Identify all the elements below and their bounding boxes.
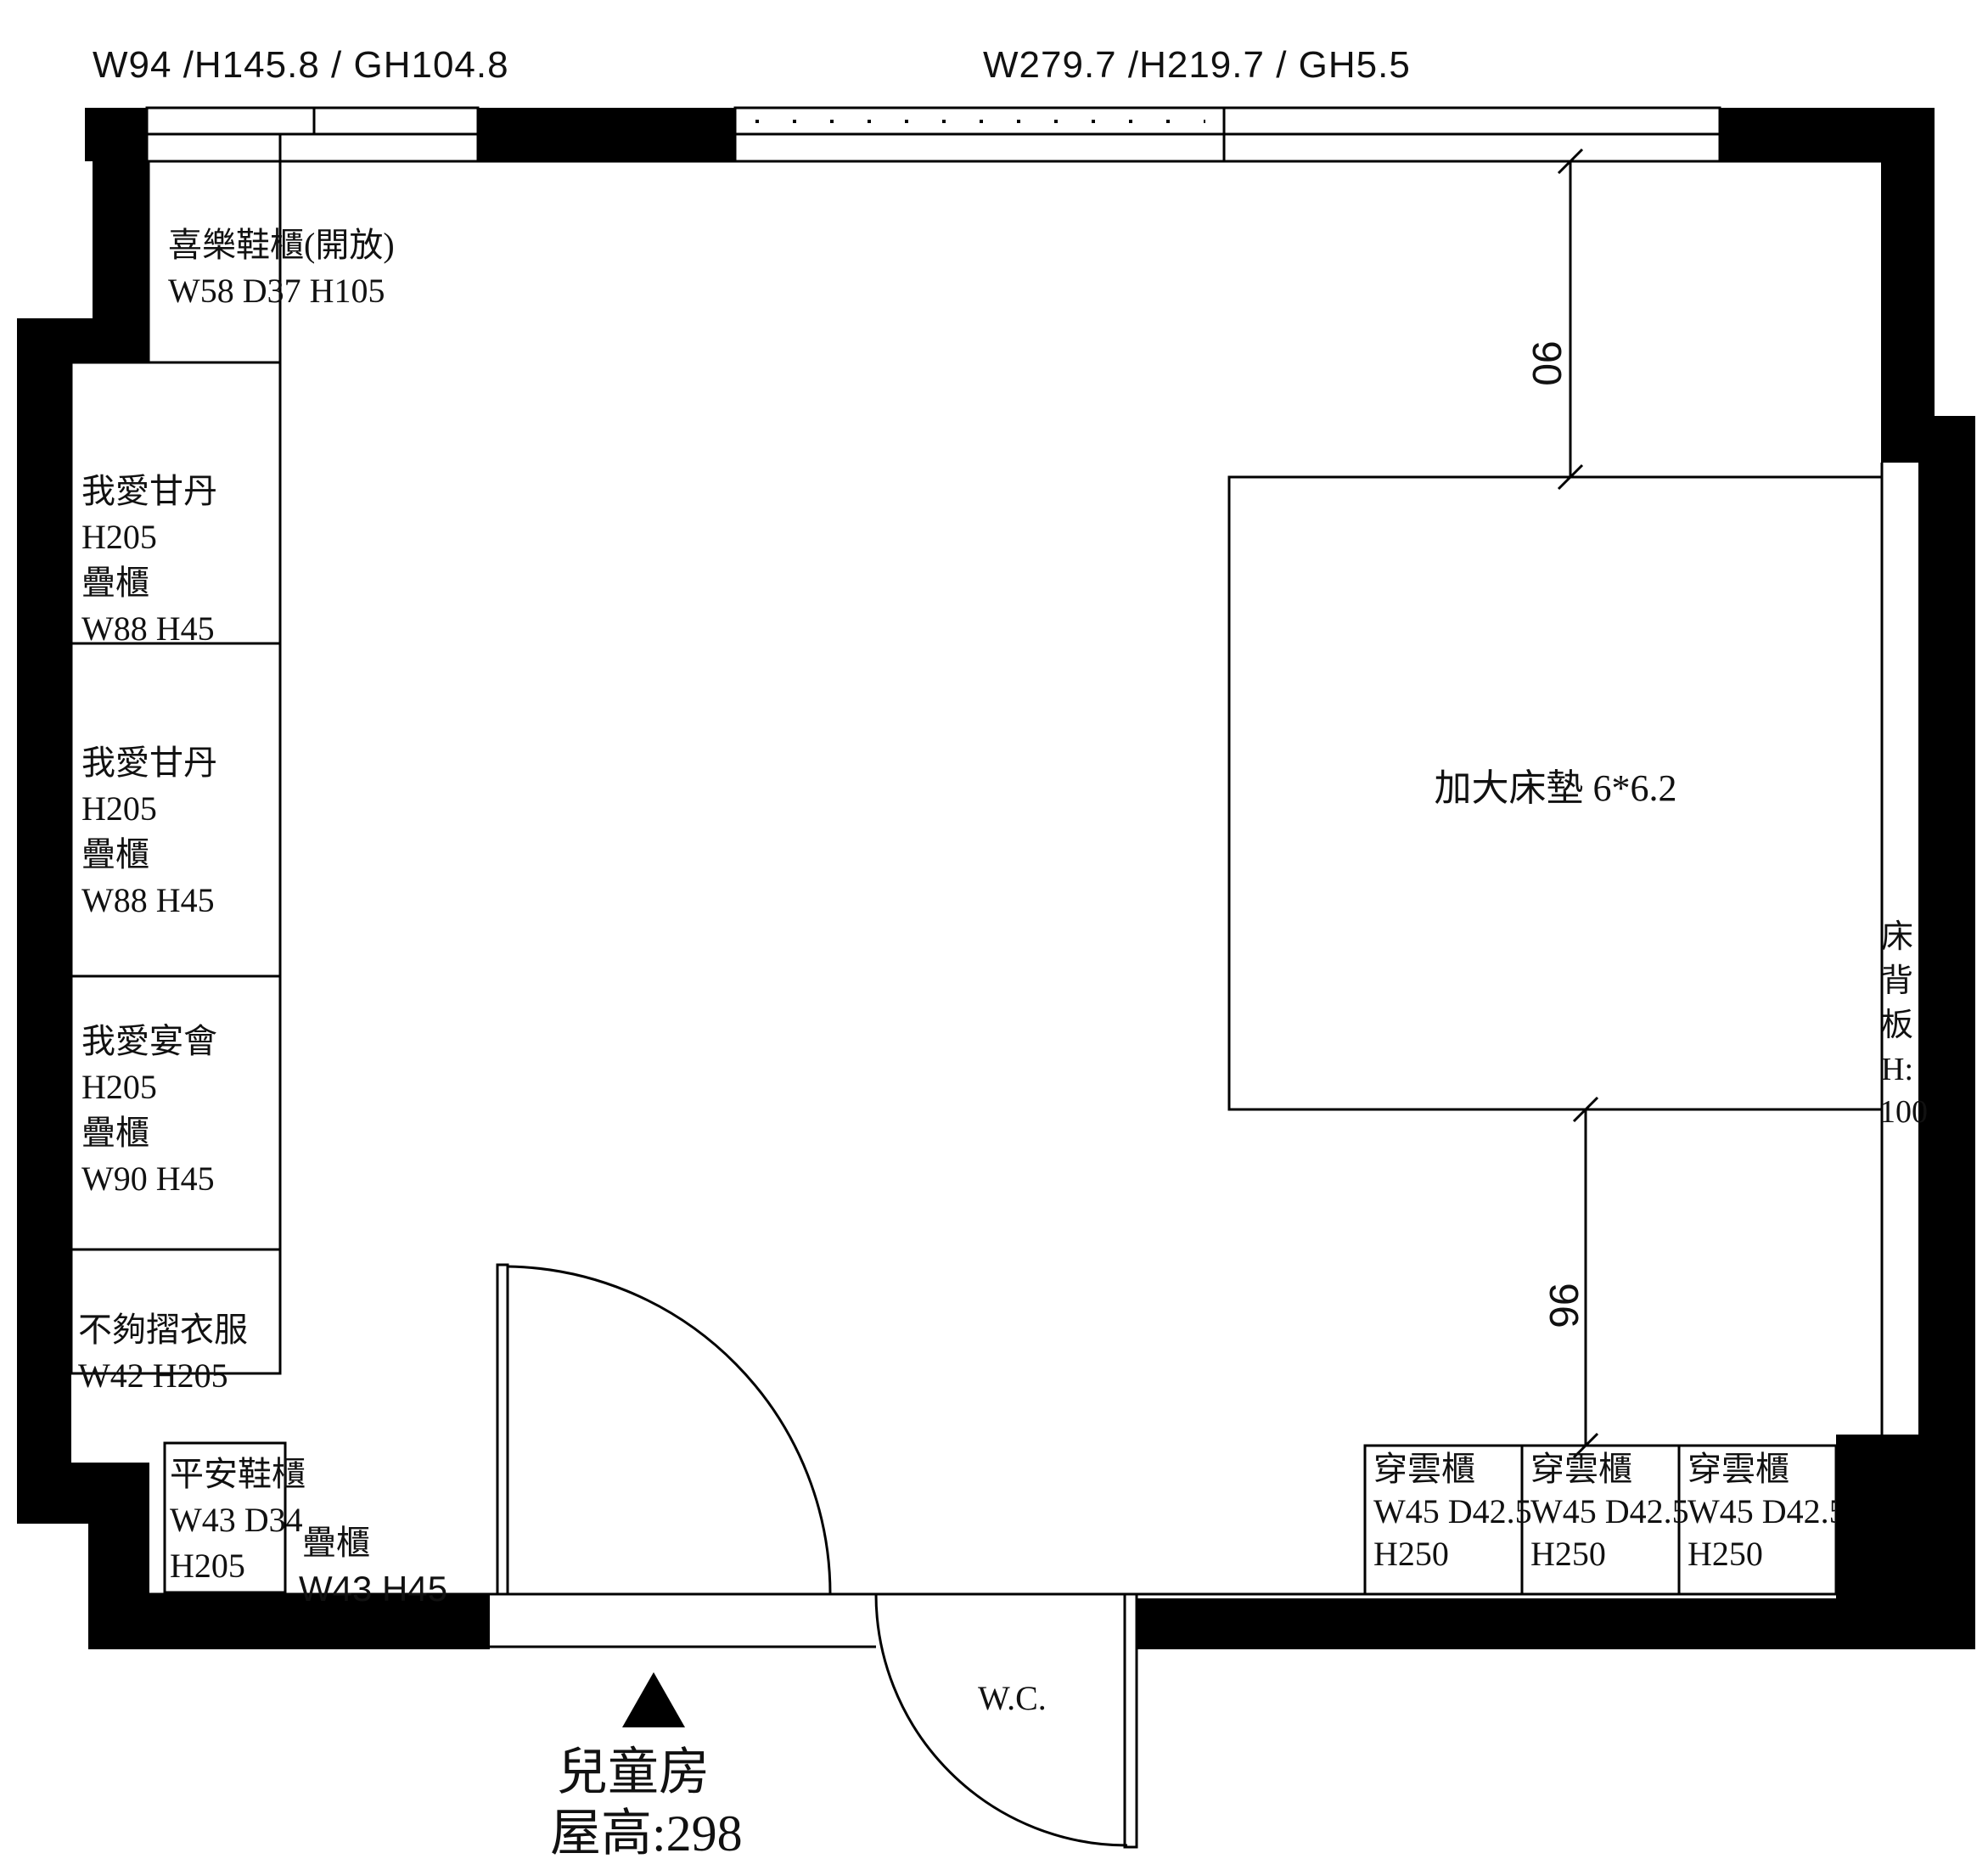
wall-right-bottom-block-cover	[1836, 1435, 1975, 1598]
entry-door-swing-arc	[508, 1266, 830, 1594]
wardrobe-size: W45 D42.5	[1373, 1491, 1532, 1533]
cabinet-name: 我愛甘丹	[81, 469, 217, 514]
wall-bottom-band-right	[1137, 1598, 1975, 1649]
headboard-char: 背	[1881, 959, 1923, 1003]
headboard-char: 板	[1881, 1003, 1923, 1047]
wall-right-step	[1881, 416, 1975, 463]
wall-bottom-left-post	[88, 1524, 149, 1594]
cabinet-name: 我愛宴會	[81, 1019, 217, 1064]
wardrobe-name: 穿雲櫃	[1530, 1448, 1689, 1491]
shoe-cabinet-safe-label: 平安鞋櫃 W43 D34 H205	[170, 1453, 306, 1591]
cabinet-height: H205	[170, 1545, 306, 1591]
wardrobe-size: W45 D42.5	[1688, 1491, 1846, 1533]
cabinet-type: 疊櫃	[81, 832, 217, 878]
stack-cabinet-3-label: 我愛宴會 H205 疊櫃 W90 H45	[81, 1019, 217, 1202]
shoe-cabinet-open-name: 喜樂鞋櫃(開放)	[168, 222, 395, 268]
cabinet-name: 平安鞋櫃	[170, 1453, 306, 1499]
cabinet-name: 我愛甘丹	[81, 740, 217, 786]
cabinet-type: 疊櫃	[81, 1110, 217, 1156]
wardrobe-1-label: 穿雲櫃 W45 D42.5 H250	[1373, 1448, 1532, 1575]
wardrobe-2-label: 穿雲櫃 W45 D42.5 H250	[1530, 1448, 1689, 1575]
cabinet-size: W43 D34	[170, 1499, 306, 1545]
wc-label: W.C.	[978, 1676, 1047, 1721]
wardrobe-name: 穿雲櫃	[1373, 1448, 1532, 1491]
headboard-char: 100	[1879, 1090, 1922, 1134]
headboard-char: H:	[1881, 1047, 1923, 1092]
stack-cabinet-2-label: 我愛甘丹 H205 疊櫃 W88 H45	[81, 740, 217, 924]
wall-top-left-band	[85, 108, 149, 161]
wardrobe-name: 穿雲櫃	[1688, 1448, 1846, 1491]
wall-right	[1918, 463, 1975, 1435]
cabinet-name: 不夠摺衣服	[78, 1307, 248, 1353]
wc-door-leaf	[1125, 1594, 1137, 1847]
room-name: 兒童房	[557, 1742, 710, 1803]
dim-value-90: 90	[1519, 336, 1574, 390]
wall-bottom-left-corner	[17, 1463, 149, 1524]
wardrobe-3-label: 穿雲櫃 W45 D42.5 H250	[1688, 1448, 1846, 1575]
shoe-cabinet-open-label: 喜樂鞋櫃(開放) W58 D37 H105	[168, 222, 395, 314]
window-left-dim-label: W94 /H145.8 / GH104.8	[93, 41, 509, 90]
wardrobe-height: H250	[1688, 1533, 1846, 1575]
wall-top-mid-band	[478, 108, 735, 161]
headboard-char: 床	[1881, 915, 1923, 959]
wall-top-right-band	[1720, 108, 1935, 161]
stack-cabinet-1-label: 我愛甘丹 H205 疊櫃 W88 H45	[81, 469, 217, 652]
windows	[147, 108, 1720, 161]
bed-label: 加大床墊 6*6.2	[1229, 764, 1882, 813]
room-ceiling-height: 屋高:298	[550, 1803, 743, 1864]
wall-right-post	[1881, 161, 1935, 416]
cabinet-size: W42 H205	[78, 1353, 248, 1399]
entry-direction-triangle-icon	[622, 1672, 685, 1727]
entry-door-leaf	[497, 1265, 508, 1594]
cabinet-type: 疊櫃	[81, 560, 217, 606]
cabinet-height: H205	[81, 786, 217, 832]
furniture	[71, 161, 1882, 1594]
wardrobe-height: H250	[1373, 1533, 1532, 1575]
cabinet-height: H205	[81, 1064, 217, 1110]
window-top-dim-label: W279.7 /H219.7 / GH5.5	[983, 41, 1411, 90]
stack-note-size: W43 H45	[299, 1565, 447, 1612]
wall-left	[17, 318, 71, 1463]
fold-cabinet-label: 不夠摺衣服 W42 H205	[78, 1307, 248, 1399]
wardrobe-height: H250	[1530, 1533, 1689, 1575]
cabinet-size: W88 H45	[81, 878, 217, 924]
floor-plan: W94 /H145.8 / GH104.8 W279.7 /H219.7 / G…	[0, 0, 1988, 1870]
dim-value-96: 96	[1536, 1278, 1591, 1333]
stack-note-type: 疊櫃	[302, 1521, 370, 1566]
wardrobe-size: W45 D42.5	[1530, 1491, 1689, 1533]
cabinet-size: W90 H45	[81, 1156, 217, 1202]
cabinet-size: W88 H45	[81, 606, 217, 652]
cabinet-height: H205	[81, 514, 217, 560]
shoe-cabinet-open-size: W58 D37 H105	[168, 268, 395, 314]
